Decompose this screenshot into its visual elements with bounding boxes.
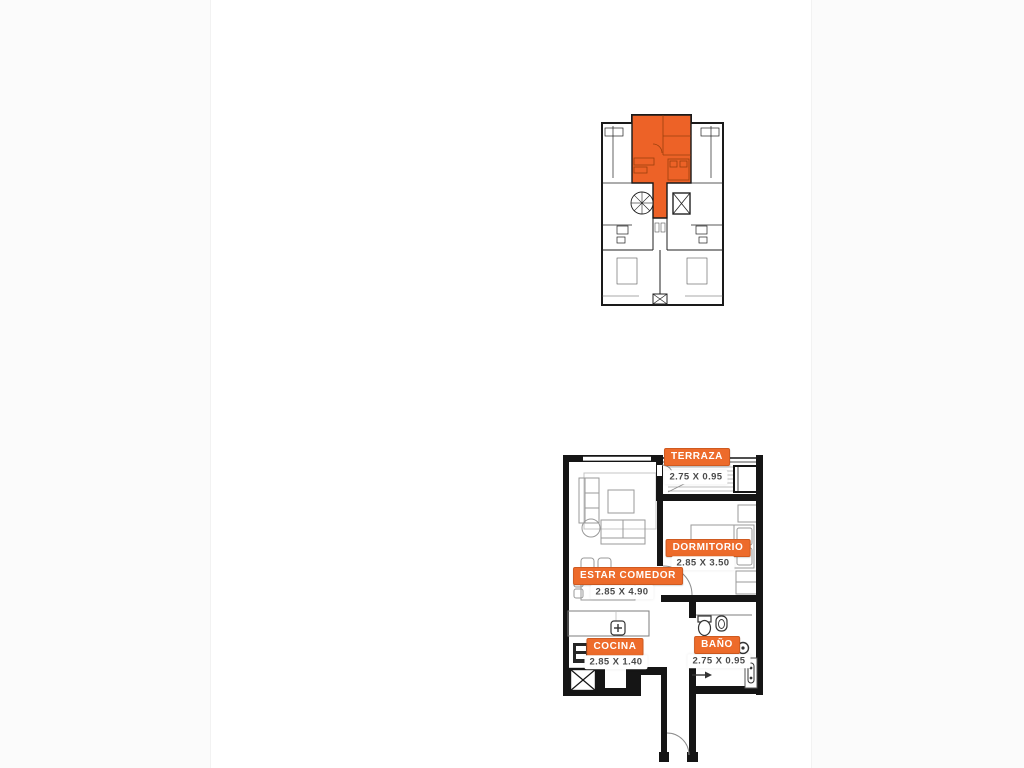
room-label-bano: BAÑO xyxy=(694,636,740,654)
walls xyxy=(563,455,763,762)
room-label-estar-comedor: ESTAR COMEDOR xyxy=(573,567,683,585)
shaft-icon xyxy=(570,669,596,691)
key-plan xyxy=(597,108,727,308)
room-dimensions-cocina: 2.85 X 1.40 xyxy=(585,655,648,669)
elevator-icon xyxy=(673,193,690,214)
entry-door-arc xyxy=(667,733,689,755)
unit-plan: TERRAZA 2.75 X 0.95 DORMITORIO 2.85 X 3.… xyxy=(556,445,771,768)
toilet-icon xyxy=(698,616,711,636)
unit-plan-svg xyxy=(556,445,771,768)
room-dimensions-bano: 2.75 X 0.95 xyxy=(688,654,751,668)
spiral-stair-icon xyxy=(631,192,653,214)
living-window xyxy=(583,456,651,461)
room-dimensions-terraza: 2.75 X 0.95 xyxy=(665,470,728,484)
page-background: TERRAZA 2.75 X 0.95 DORMITORIO 2.85 X 3.… xyxy=(210,0,812,768)
lower-elevator-icon xyxy=(653,294,667,304)
bidet-icon xyxy=(716,616,727,631)
room-label-cocina: COCINA xyxy=(586,638,643,656)
cooktop-icon xyxy=(611,621,625,635)
room-label-terraza: TERRAZA xyxy=(664,448,730,466)
key-plan-svg xyxy=(597,108,727,308)
page: { "colors": { "highlight_orange": "#ED62… xyxy=(0,0,1024,768)
room-label-dormitorio: DORMITORIO xyxy=(666,539,751,557)
terraza-planter xyxy=(734,466,758,492)
room-dimensions-estar-comedor: 2.85 X 4.90 xyxy=(591,585,654,599)
